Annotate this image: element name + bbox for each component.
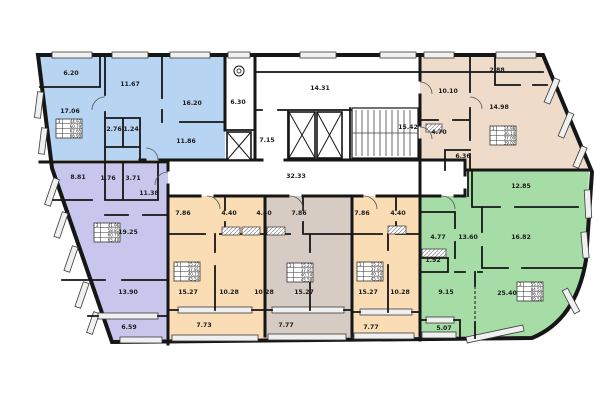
apartment-summary-table: 115.2737.8140.1445.58	[287, 263, 313, 282]
apartment-summary-table: 114.9836.1437.0039.02	[490, 126, 516, 145]
room-area-label: 7.73	[196, 322, 211, 329]
room-area-label: 1.24	[123, 126, 139, 133]
room-area-label: 4.40	[390, 210, 406, 217]
summary-area-value: 66.99	[70, 133, 82, 138]
room-area-label: 5.07	[436, 325, 451, 332]
apartment-summary-table: 341.9658.8160.7965.40	[94, 223, 120, 242]
room-area-label: 4.40	[256, 210, 272, 217]
room-area-label: 10.28	[254, 289, 274, 296]
summary-area-value: 45.58	[301, 277, 313, 282]
room-area-label: 8.81	[70, 174, 85, 181]
room-area-label: 15.27	[294, 289, 314, 296]
room-area-label: 11.38	[139, 190, 159, 197]
room-area-label: 16.82	[511, 234, 531, 241]
summary-area-value: 45.54	[188, 276, 200, 281]
summary-area-value: 89.58	[531, 296, 543, 301]
summary-rooms-count: 1	[289, 263, 292, 268]
room-area-label: 13.60	[458, 234, 478, 241]
room-area-label: 7.77	[363, 324, 378, 331]
room-area-label: 14.98	[489, 104, 509, 111]
room-area-label: 6.59	[121, 324, 136, 331]
room-area-label: 7.86	[291, 210, 306, 217]
room-area-label: 10.10	[438, 88, 458, 95]
summary-area-value: 39.02	[504, 140, 516, 145]
room-area-label: 2.76	[106, 126, 121, 133]
summary-rooms-count: 1	[359, 262, 362, 267]
summary-rooms-count: 3	[96, 223, 99, 228]
trash-chute-icon	[234, 66, 244, 76]
room-area-label: 7.77	[278, 322, 293, 329]
room-area-label: 6.20	[63, 70, 79, 77]
room-area-label: 4.70	[431, 129, 447, 136]
room-area-label: 3.71	[125, 175, 140, 182]
room-area-label: 12.85	[511, 183, 531, 190]
room-area-label: 6.30	[230, 99, 246, 106]
room-area-label: 1.76	[100, 175, 115, 182]
room-area-label: 11.67	[120, 81, 140, 88]
room-area-label: 15.42	[398, 124, 418, 131]
room-area-label: 6.36	[455, 153, 470, 160]
room-area-label: 7.86	[175, 210, 190, 217]
room-area-label: 10.28	[390, 289, 410, 296]
room-area-label: 7.86	[354, 210, 369, 217]
summary-rooms-count: 3	[58, 119, 61, 124]
room-area-label: 13.90	[118, 289, 138, 296]
room-area-label: 14.31	[310, 85, 330, 92]
summary-rooms-count: 1	[492, 126, 495, 131]
room-area-label: 1.92	[425, 257, 440, 264]
room-area-label: 7.15	[259, 137, 274, 144]
room-area-label: 32.33	[286, 173, 306, 180]
summary-area-value: 45.58	[371, 276, 383, 281]
room-area-label: 15.27	[178, 289, 198, 296]
room-area-label: 4.77	[430, 234, 445, 241]
apartment-summary-table: 344.9360.7962.6566.99	[56, 119, 82, 138]
summary-rooms-count: 1	[176, 262, 179, 267]
room-area-label: 15.27	[358, 289, 378, 296]
summary-rooms-count: 3	[519, 282, 522, 287]
staircase	[352, 108, 418, 158]
room-area-label: 2.88	[489, 67, 504, 74]
room-area-label: 4.40	[221, 210, 237, 217]
floor-plan: 344.9360.7962.6566.99341.9658.8160.7965.…	[0, 0, 600, 400]
apartment-summary-table: 115.2737.8140.1345.54	[174, 262, 200, 281]
room-area-label: 11.86	[176, 138, 196, 145]
room-area-label: 19.25	[118, 229, 138, 236]
room-area-label: 17.06	[60, 108, 80, 115]
apartment-summary-table: 115.2737.8140.1445.58	[357, 262, 383, 281]
floor-plan-page: 344.9360.7962.6566.99341.9658.8160.7965.…	[0, 0, 600, 400]
room-area-label: 25.40	[497, 290, 517, 297]
room-area-label: 9.15	[438, 289, 453, 296]
summary-area-value: 65.40	[108, 237, 120, 242]
apartment-summary-table: 355.0784.5186.0389.58	[517, 282, 543, 301]
room-area-label: 10.28	[219, 289, 239, 296]
room-area-label: 16.20	[182, 100, 202, 107]
